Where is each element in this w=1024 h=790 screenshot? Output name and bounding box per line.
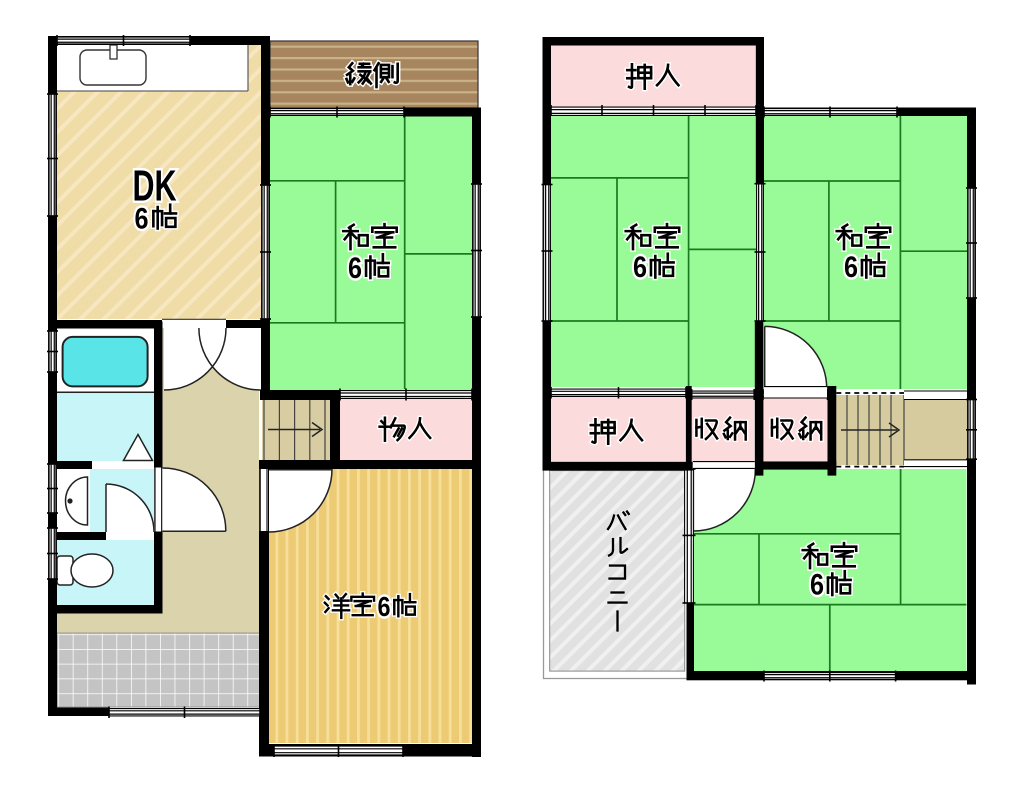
svg-text:6: 6 xyxy=(844,251,858,284)
svg-text:6: 6 xyxy=(633,251,647,284)
svg-text:6: 6 xyxy=(810,569,824,602)
svg-text:6: 6 xyxy=(135,202,149,235)
svg-text:6: 6 xyxy=(378,591,391,622)
svg-text:6: 6 xyxy=(348,252,362,285)
